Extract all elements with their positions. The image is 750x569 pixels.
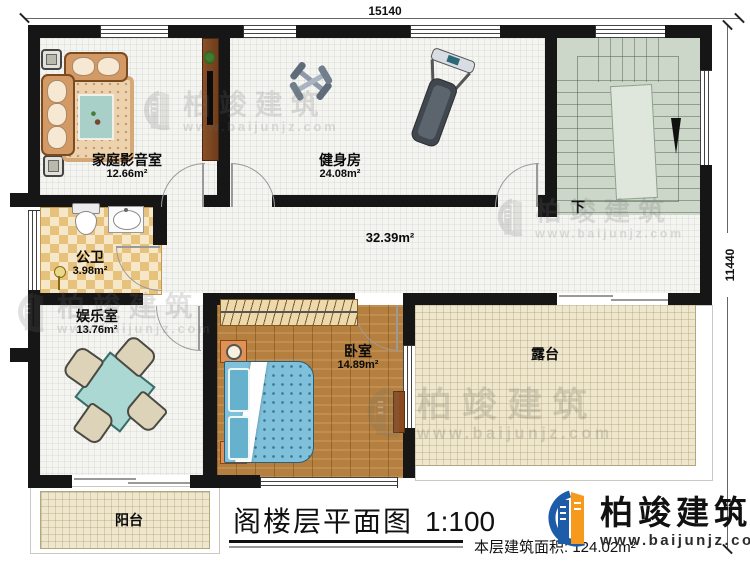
floor-terrace (415, 305, 696, 466)
dimension-line-top (24, 18, 740, 19)
nightstand (220, 340, 247, 363)
wall-segment (203, 195, 230, 207)
window (410, 25, 502, 38)
room-label-terrace: 露台 (510, 346, 580, 362)
terrace-opening (559, 295, 613, 297)
wardrobe-rail (221, 311, 357, 313)
sofa-cushion (47, 103, 67, 126)
bed-pillow (228, 368, 250, 412)
hall-area-label: 32.39m² (352, 231, 428, 246)
brand-text-block: 柏竣建筑 www.baijunjz.com (600, 496, 750, 549)
rug-center-panel (78, 94, 114, 140)
balcony-sliding-door (128, 482, 190, 484)
sofa-cushion (47, 126, 67, 149)
room-label-bathroom: 公卫 3.98m² (55, 249, 125, 278)
sofa-left (41, 74, 75, 156)
balcony-sliding-door (74, 478, 136, 480)
wall-segment (700, 25, 712, 70)
room-name: 阳台 (94, 512, 164, 528)
speaker-cone (46, 54, 57, 65)
room-label-bedroom: 卧室 14.89m² (313, 343, 403, 372)
room-name: 公卫 (55, 249, 125, 265)
room-label-entertainment: 娱乐室 13.76m² (52, 308, 142, 337)
floor-drain-stem (58, 276, 60, 290)
speaker (41, 49, 62, 70)
dimension-right-label: 11440 (723, 233, 737, 297)
sink-faucet (124, 208, 128, 212)
room-name: 健身房 (290, 152, 390, 168)
window (243, 25, 298, 38)
stair-down-arrow (671, 118, 681, 154)
room-name: 家庭影音室 (67, 152, 187, 168)
terrace-opening (611, 299, 668, 301)
wall-segment (190, 475, 260, 488)
toilet (72, 203, 98, 234)
bed-pillow (228, 416, 250, 460)
wall-segment (272, 195, 498, 207)
wall-segment (415, 293, 557, 305)
toilet-bowl (75, 211, 97, 235)
wall-segment (28, 475, 72, 488)
stair-down-label: 下 (566, 199, 590, 217)
dumbbells-icon (288, 55, 334, 107)
wall-segment (28, 290, 40, 475)
sink-basin (113, 210, 141, 230)
wardrobe (220, 299, 358, 326)
window (260, 477, 398, 488)
door-leaf (536, 163, 538, 207)
room-label-home-theater: 家庭影音室 12.66m² (67, 152, 187, 181)
brand-name: 柏竣建筑 (600, 496, 750, 529)
title-underline (229, 540, 463, 543)
brand-logo-icon (540, 488, 592, 556)
wall-segment (168, 25, 243, 38)
wall-segment (33, 25, 100, 38)
drawing-title-text: 阁楼层平面图 (233, 500, 413, 540)
wall-segment (203, 293, 217, 478)
wall-segment (28, 25, 40, 195)
title-underline-thin (229, 546, 463, 548)
dimension-top-label: 15140 (350, 4, 420, 18)
wall-segment (545, 25, 557, 215)
sofa-cushion (72, 57, 95, 76)
stair-down-text: 下 (571, 199, 585, 215)
window (595, 25, 667, 38)
brand-website: www.baijunjz.com (600, 532, 750, 549)
wall-segment (668, 293, 712, 305)
speaker-cone (48, 160, 59, 172)
room-area: 32.39m² (352, 231, 428, 246)
speaker (43, 155, 64, 177)
door-leaf (116, 246, 160, 248)
window (700, 70, 712, 167)
wall-segment (700, 165, 712, 293)
wall-segment (403, 293, 415, 345)
room-label-balcony: 阳台 (94, 512, 164, 528)
room-name: 露台 (510, 346, 580, 362)
room-name: 娱乐室 (52, 308, 142, 324)
lamp (226, 344, 242, 360)
room-name: 卧室 (313, 343, 403, 359)
room-area: 24.08m² (290, 168, 390, 181)
drawing-title: 阁楼层平面图 1:100 (233, 500, 495, 540)
window (28, 210, 40, 292)
room-area: 3.98m² (55, 265, 125, 278)
tv-screen (207, 71, 213, 125)
wall-segment (28, 293, 143, 305)
drawing-scale: 1:100 (425, 506, 495, 538)
room-area: 13.76m² (52, 324, 142, 337)
sofa-cushion (97, 57, 120, 76)
wall-segment (538, 195, 557, 207)
room-label-gym: 健身房 24.08m² (290, 152, 390, 181)
wall-segment (403, 428, 415, 478)
brand-logo: 柏竣建筑 www.baijunjz.com (540, 488, 750, 556)
tv-cabinet (202, 38, 219, 161)
plant (204, 51, 215, 64)
bedside-cabinet (393, 391, 405, 433)
floor-plan: 下 (0, 0, 750, 569)
sink (108, 206, 144, 233)
room-area: 12.66m² (67, 168, 187, 181)
wall-segment (296, 25, 410, 38)
door-leaf (198, 306, 200, 350)
wall-pilaster (10, 348, 32, 362)
door-leaf (202, 163, 204, 207)
bed (224, 361, 314, 463)
sofa-cushion (47, 80, 67, 103)
door-leaf (231, 163, 233, 207)
room-area: 14.89m² (313, 359, 403, 372)
stair-landing (610, 84, 658, 200)
window (100, 25, 170, 38)
